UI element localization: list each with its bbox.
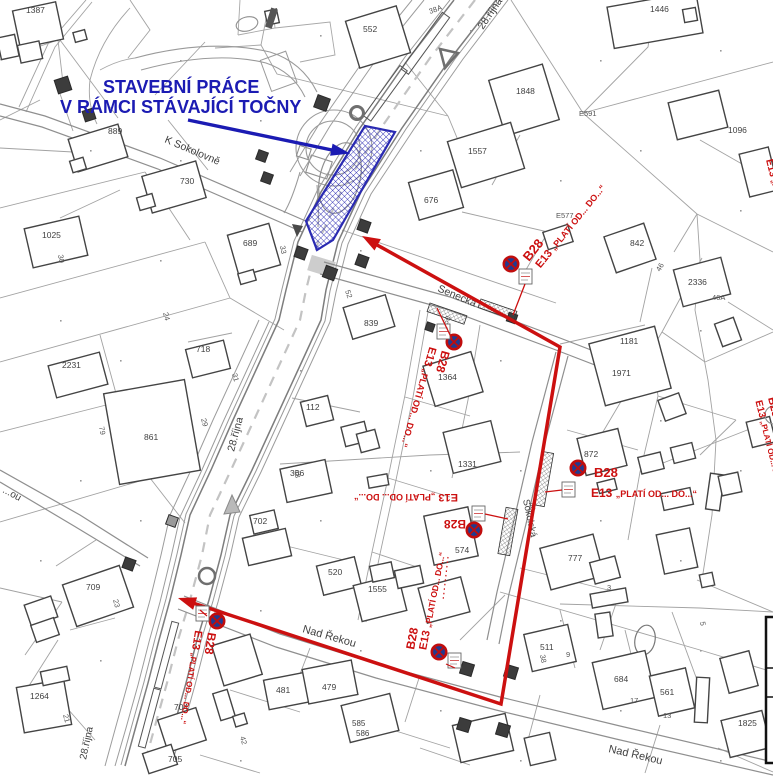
svg-text:861: 861 xyxy=(144,432,158,442)
svg-text:1331: 1331 xyxy=(458,459,477,469)
svg-text:552: 552 xyxy=(363,24,377,34)
svg-text:2336: 2336 xyxy=(688,277,707,287)
svg-text:33: 33 xyxy=(278,245,288,255)
svg-text:38: 38 xyxy=(538,654,548,664)
svg-text:79: 79 xyxy=(97,426,107,436)
svg-text:718: 718 xyxy=(196,344,210,354)
svg-text:3: 3 xyxy=(607,583,611,592)
svg-text:889: 889 xyxy=(108,126,122,136)
svg-text:586: 586 xyxy=(356,729,370,738)
svg-text:2231: 2231 xyxy=(62,360,81,370)
svg-text:48: 48 xyxy=(292,469,302,479)
svg-text:574: 574 xyxy=(455,545,469,555)
svg-text:511: 511 xyxy=(540,642,554,652)
svg-text:777: 777 xyxy=(568,553,582,563)
svg-text:520: 520 xyxy=(328,567,342,577)
svg-text:1555: 1555 xyxy=(368,584,387,594)
svg-text:1971: 1971 xyxy=(612,368,631,378)
svg-text:730: 730 xyxy=(180,176,194,186)
svg-text:1446: 1446 xyxy=(650,4,669,14)
svg-text:1181: 1181 xyxy=(620,336,639,346)
svg-text:E13 „PLATÍ OD... DO...“: E13 „PLATÍ OD... DO...“ xyxy=(591,486,697,500)
svg-text:479: 479 xyxy=(322,682,336,692)
svg-text:1025: 1025 xyxy=(42,230,61,240)
svg-text:1825: 1825 xyxy=(738,718,757,728)
svg-text:STAVEBNÍ PRÁCE: STAVEBNÍ PRÁCE xyxy=(103,76,259,97)
svg-text:842: 842 xyxy=(630,238,644,248)
svg-text:13: 13 xyxy=(663,711,671,720)
svg-text:561: 561 xyxy=(660,687,674,697)
svg-text:839: 839 xyxy=(364,318,378,328)
svg-text:B28: B28 xyxy=(444,517,466,531)
svg-text:112: 112 xyxy=(306,402,320,412)
svg-text:689: 689 xyxy=(243,238,257,248)
svg-text:B28: B28 xyxy=(594,465,618,480)
svg-text:481: 481 xyxy=(276,685,290,695)
svg-text:872: 872 xyxy=(584,449,598,459)
svg-text:705: 705 xyxy=(168,754,182,764)
svg-text:709: 709 xyxy=(86,582,100,592)
svg-text:V RÁMCI STÁVAJÍCÍ TOČNY: V RÁMCI STÁVAJÍCÍ TOČNY xyxy=(60,96,301,117)
svg-text:E591: E591 xyxy=(579,109,597,118)
svg-text:1387: 1387 xyxy=(26,5,45,15)
svg-text:1557: 1557 xyxy=(468,146,487,156)
svg-text:46A: 46A xyxy=(712,293,725,302)
svg-text:684: 684 xyxy=(614,674,628,684)
svg-text:585: 585 xyxy=(352,719,366,728)
svg-text:1848: 1848 xyxy=(516,86,535,96)
svg-text:702: 702 xyxy=(253,516,267,526)
svg-text:1264: 1264 xyxy=(30,691,49,701)
svg-text:30: 30 xyxy=(56,254,66,264)
svg-text:676: 676 xyxy=(424,195,438,205)
svg-text:1096: 1096 xyxy=(728,125,747,135)
svg-text:17: 17 xyxy=(630,696,638,705)
svg-text:E13 „PLATÍ OD... DO...“: E13 „PLATÍ OD... DO...“ xyxy=(354,491,458,503)
svg-text:9: 9 xyxy=(566,650,570,659)
